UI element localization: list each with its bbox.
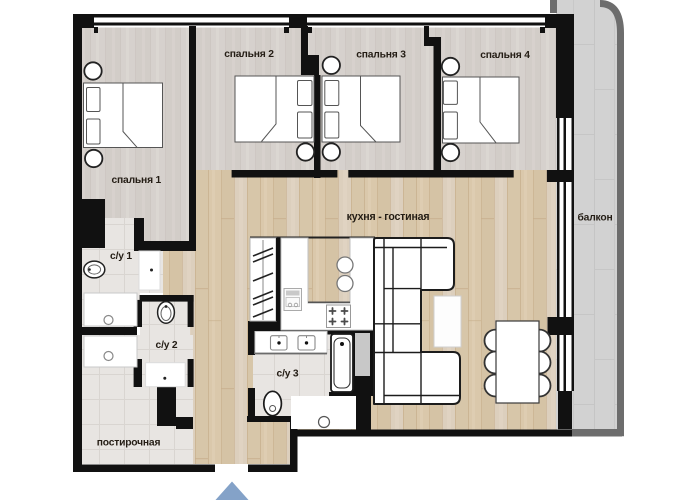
svg-text:спальня 4: спальня 4 [480,50,530,61]
svg-text:с/у 2: с/у 2 [156,340,178,351]
svg-text:спальня 3: спальня 3 [356,50,406,61]
svg-text:спальня 1: спальня 1 [112,175,162,186]
svg-text:спальня 2: спальня 2 [224,49,274,60]
svg-text:постирочная: постирочная [97,438,161,449]
svg-text:балкон: балкон [578,212,613,224]
svg-text:кухня - гостиная: кухня - гостиная [347,211,430,223]
svg-text:с/у 1: с/у 1 [110,251,132,262]
svg-text:с/у 3: с/у 3 [277,369,299,380]
